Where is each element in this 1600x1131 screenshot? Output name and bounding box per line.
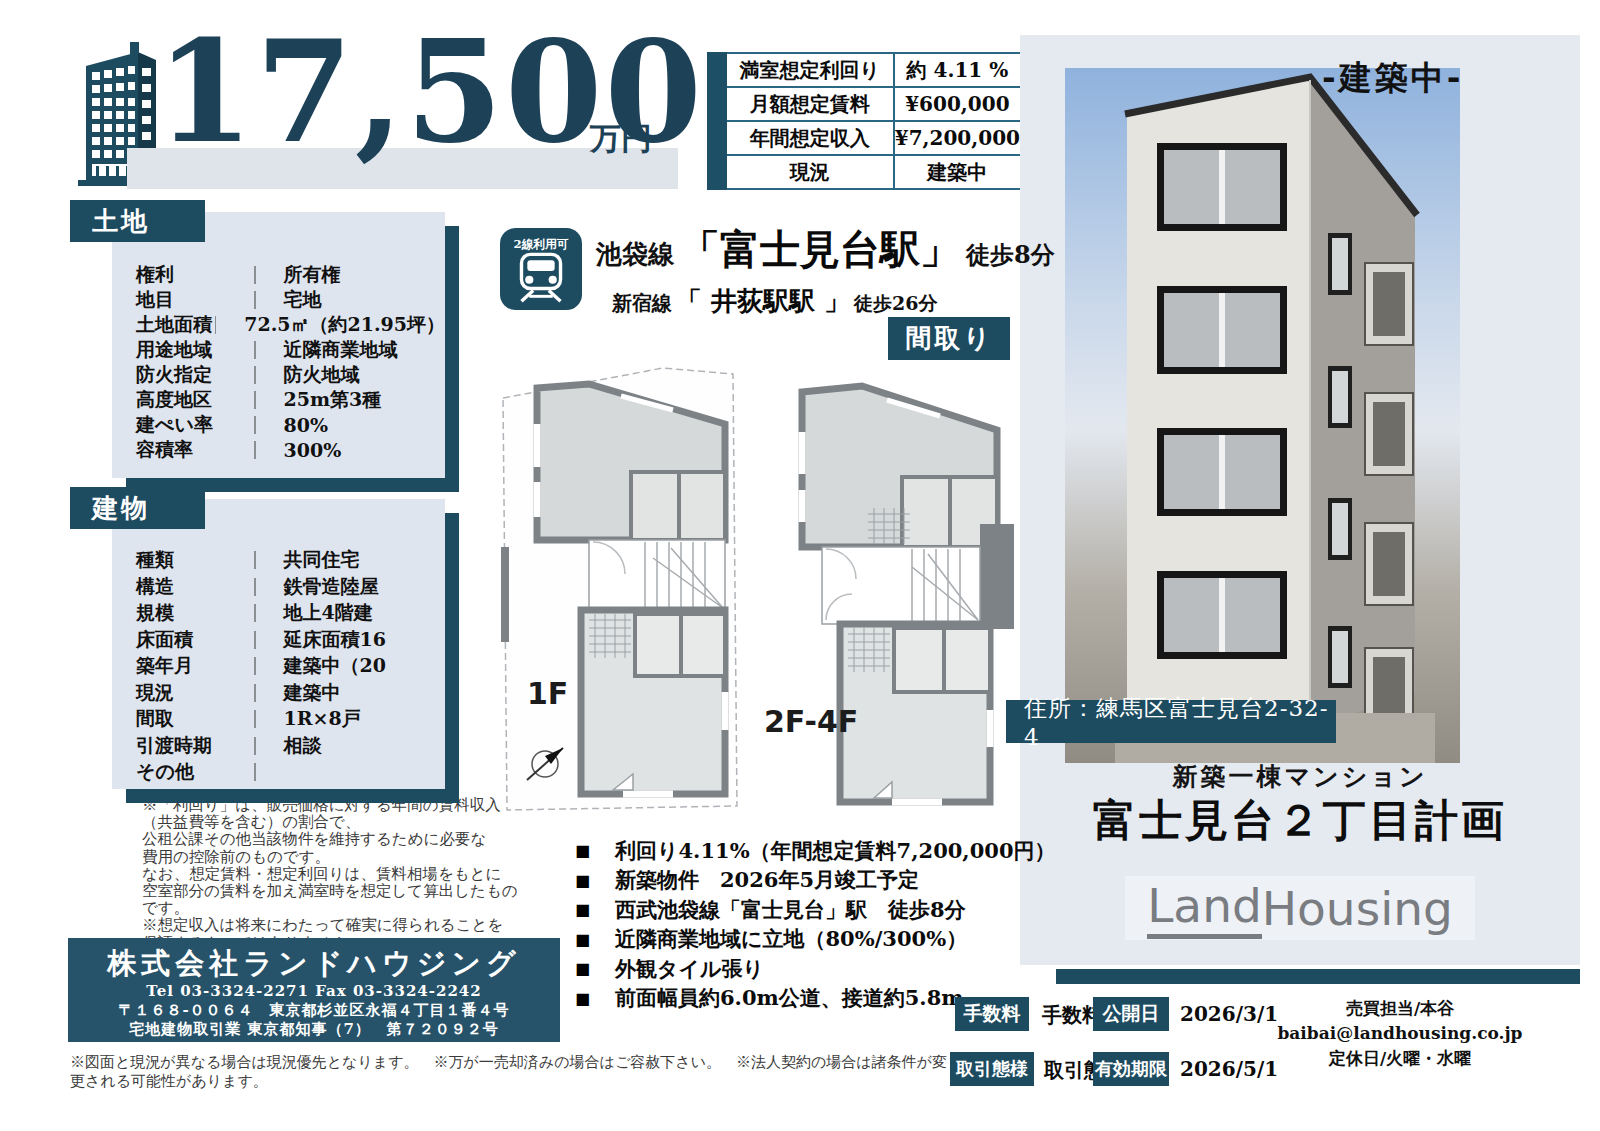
summary-label: 月額想定賃料: [727, 88, 895, 120]
table-row: 月額想定賃料 ¥600,000: [727, 88, 1020, 122]
company-telfax: Tel 03-3324-2271 Fax 03-3324-2242: [68, 982, 560, 1001]
walk-time: 徒歩8分: [966, 239, 1055, 271]
landhousing-logo: LandHousing: [1125, 876, 1475, 940]
published-value: 2026/3/1: [1180, 1002, 1278, 1026]
divider: [254, 657, 256, 675]
logo-part-housing: Housing: [1262, 881, 1453, 936]
divider: [254, 366, 256, 384]
rail-line-name: 新宿線: [612, 290, 672, 317]
summary-label: 現況: [727, 156, 895, 188]
price-unit: 万円: [590, 118, 652, 160]
transaction-mode-label-tag: 取引態様: [950, 1052, 1034, 1086]
divider: [254, 341, 256, 359]
spec-label: 間取: [136, 706, 254, 732]
property-category: 新築一棟マンション: [1020, 760, 1580, 793]
validity-label-tag: 有効期限: [1093, 1052, 1169, 1086]
primary-station-access: 池袋線 「富士見台駅」 徒歩8分: [596, 222, 1055, 277]
contact-person: 売買担当/本谷: [1265, 996, 1535, 1021]
summary-label: 年間想定収入: [727, 122, 895, 154]
land-spec-table: 権利所有権 地目宅地 土地面積72.5㎡（約21.95坪） 用途地域近隣商業地域…: [112, 212, 445, 478]
divider: [254, 416, 256, 434]
divider: [215, 316, 217, 334]
logo-part-land: Land: [1147, 878, 1262, 939]
table-row: 土地面積72.5㎡（約21.95坪）: [136, 312, 445, 337]
divider: [254, 266, 256, 284]
table-row: 現況建築中: [136, 680, 445, 707]
published-label-tag: 公開日: [1093, 997, 1169, 1031]
train-badge-text: 2線利用可: [514, 237, 569, 251]
spec-label: 地目: [136, 287, 254, 313]
divider: [254, 291, 256, 309]
spec-value: 建築中（20: [284, 653, 386, 679]
highlight-text: 利回り4.11%（年間想定賃料7,200,000円）: [615, 837, 1056, 865]
table-row: 引渡時期相談: [136, 733, 445, 760]
company-license: 宅地建物取引業 東京都知事（7） 第７２０９２号: [68, 1020, 560, 1039]
floorplan-2f-4f: 2F-4F: [762, 362, 1014, 812]
table-row: 高度地区25m第3種: [136, 387, 445, 412]
divider: [254, 604, 256, 622]
spec-label: 規模: [136, 600, 254, 626]
contact-email: baibai@landhousing.co.jp: [1265, 1021, 1535, 1046]
company-address: 〒１６８-００６４ 東京都杉並区永福４丁目１番４号: [68, 1001, 560, 1020]
square-bullet-icon: ■: [575, 871, 615, 890]
divider: [254, 684, 256, 702]
spec-value: 72.5㎡（約21.95坪）: [244, 312, 445, 338]
land-section-header: 土地: [70, 200, 205, 242]
table-row: 容積率300%: [136, 437, 445, 462]
divider: [254, 391, 256, 409]
spec-value: 宅地: [284, 287, 322, 313]
divider: [254, 763, 256, 781]
table-row: 構造鉄骨造陸屋: [136, 574, 445, 601]
station-name: 「 井荻駅駅 」: [676, 284, 850, 319]
spec-value: 近隣商業地域: [284, 337, 398, 363]
spec-label: 構造: [136, 574, 254, 600]
table-row: その他: [136, 759, 445, 786]
property-highlights-list: ■利回り4.11%（年間想定賃料7,200,000円） ■新築物件 2026年5…: [575, 836, 1025, 1013]
spec-value: 25m第3種: [284, 387, 382, 413]
spec-value: 300%: [284, 439, 342, 461]
table-row: 年間想定収入 ¥7,200,000: [727, 122, 1020, 156]
walk-time: 徒歩26分: [854, 291, 937, 317]
floorplan-1f-label: 1F: [527, 676, 568, 711]
building-spec-table: 種類共同住宅 構造鉄骨造陸屋 規模地上4階建 床面積延床面積16 築年月建築中（…: [112, 499, 445, 789]
building-render-image: [1065, 68, 1460, 763]
divider: [254, 551, 256, 569]
property-title: 富士見台２丁目計画: [1020, 792, 1580, 850]
secondary-station-access: 新宿線 「 井荻駅駅 」 徒歩26分: [612, 284, 938, 319]
income-summary-table: 満室想定利回り 約 4.11 % 月額想定賃料 ¥600,000 年間想定収入 …: [707, 52, 1022, 190]
summary-value: 約 4.11 %: [895, 54, 1020, 86]
contact-holiday: 定休日/火曜・水曜: [1265, 1046, 1535, 1071]
spec-label: 用途地域: [136, 337, 254, 363]
disclaimer-line: 公租公課その他当該物件を維持するために必要な: [142, 831, 522, 848]
disclaimer-line: なお、想定賃料・想定利回りは、賃料相場をもとに: [142, 866, 522, 883]
bottom-footnote: ※図面と現況が異なる場合は現況優先となります。 ※万が一売却済みの場合はご容赦下…: [70, 1053, 950, 1091]
sales-contact-block: 売買担当/本谷 baibai@landhousing.co.jp 定休日/火曜・…: [1265, 996, 1535, 1071]
divider: [254, 631, 256, 649]
highlight-text: 西武池袋線「富士見台」駅 徒歩8分: [615, 896, 966, 924]
spec-label: 築年月: [136, 653, 254, 679]
table-row: 地目宅地: [136, 287, 445, 312]
highlight-text: 近隣商業地域に立地（80%/300%）: [615, 925, 967, 953]
spec-label: その他: [136, 759, 254, 785]
spec-value: 所有権: [284, 262, 341, 288]
divider: [254, 737, 256, 755]
disclaimer-line: 費用の控除前のものです。: [142, 849, 522, 866]
spec-label: 高度地区: [136, 387, 254, 413]
floorplan-1f: 1F: [493, 362, 745, 812]
table-row: 種類共同住宅: [136, 547, 445, 574]
disclaimer-line: 空室部分の賃料を加え満室時を想定して算出したものです。: [142, 883, 522, 917]
construction-status-banner: -建築中-: [1322, 56, 1463, 101]
spec-value: 相談: [284, 733, 322, 759]
square-bullet-icon: ■: [575, 959, 615, 978]
table-row: 間取1R×8戸: [136, 706, 445, 733]
disclaimer-line: ※「利回り」は、販売価格に対する年間の賃料収入: [142, 797, 522, 814]
station-name: 「富士見台駅」: [680, 222, 960, 277]
spec-label: 防火指定: [136, 362, 254, 388]
validity-value: 2026/5/1: [1180, 1057, 1278, 1081]
spec-value: 1R×8戸: [284, 706, 361, 732]
spec-value: 建築中: [284, 680, 341, 706]
table-row: 防火指定防火地域: [136, 362, 445, 387]
building-section-header: 建物: [70, 487, 205, 529]
yield-disclaimer: ※「利回り」は、販売価格に対する年間の賃料収入 （共益費等を含む）の割合で、 公…: [142, 797, 522, 952]
floorplan-section-label: 間取り: [888, 317, 1010, 360]
spec-value: 延床面積16: [284, 627, 386, 653]
square-bullet-icon: ■: [575, 900, 615, 919]
square-bullet-icon: ■: [575, 989, 615, 1008]
summary-accent-bar: [707, 52, 727, 190]
company-info-box: 株式会社ランドハウジング Tel 03-3324-2271 Fax 03-332…: [68, 938, 560, 1042]
table-row: 現況 建築中: [727, 156, 1020, 190]
list-item: ■利回り4.11%（年間想定賃料7,200,000円）: [575, 836, 1025, 866]
table-row: 満室想定利回り 約 4.11 %: [727, 54, 1020, 88]
summary-value: ¥7,200,000: [895, 122, 1020, 154]
fee-label-tag: 手数料: [955, 997, 1029, 1031]
rail-line-name: 池袋線: [596, 237, 674, 272]
spec-value: 防火地域: [284, 362, 360, 388]
panel-shadow-bar: [1056, 969, 1580, 984]
summary-value: ¥600,000: [895, 88, 1020, 120]
list-item: ■近隣商業地域に立地（80%/300%）: [575, 925, 1025, 955]
spec-value: 鉄骨造陸屋: [284, 574, 379, 600]
property-flyer: 17,500 万円 満室想定利回り 約 4.11 % 月額想定賃料 ¥600,0…: [0, 0, 1600, 1131]
highlight-text: 前面幅員約6.0m公道、接道約5.8m: [615, 984, 964, 1012]
disclaimer-line: ※想定収入は将来にわたって確実に得られることを: [142, 917, 522, 934]
divider: [254, 578, 256, 596]
property-address-bar: 住所：練馬区富士見台2-32-4: [1006, 700, 1336, 743]
spec-label: 引渡時期: [136, 733, 254, 759]
square-bullet-icon: ■: [575, 930, 615, 949]
list-item: ■新築物件 2026年5月竣工予定: [575, 866, 1025, 896]
list-item: ■外観タイル張り: [575, 954, 1025, 984]
disclaimer-line: （共益費等を含む）の割合で、: [142, 814, 522, 831]
train-icon: 2線利用可: [500, 228, 582, 310]
table-row: 建ぺい率80%: [136, 412, 445, 437]
summary-label: 満室想定利回り: [727, 54, 895, 86]
divider: [254, 441, 256, 459]
spec-label: 土地面積: [136, 312, 215, 338]
highlight-text: 外観タイル張り: [615, 955, 764, 983]
spec-value: 共同住宅: [284, 547, 360, 573]
divider: [254, 710, 256, 728]
floorplan-2f4f-label: 2F-4F: [764, 704, 858, 739]
square-bullet-icon: ■: [575, 841, 615, 860]
list-item: ■西武池袋線「富士見台」駅 徒歩8分: [575, 895, 1025, 925]
spec-label: 現況: [136, 680, 254, 706]
spec-label: 床面積: [136, 627, 254, 653]
company-name: 株式会社ランドハウジング: [68, 945, 560, 982]
summary-value: 建築中: [895, 156, 1020, 188]
spec-label: 種類: [136, 547, 254, 573]
table-row: 床面積延床面積16: [136, 627, 445, 654]
spec-label: 容積率: [136, 437, 254, 463]
table-row: 用途地域近隣商業地域: [136, 337, 445, 362]
spec-label: 建ぺい率: [136, 412, 254, 438]
highlight-text: 新築物件 2026年5月竣工予定: [615, 866, 919, 894]
spec-value: 地上4階建: [284, 600, 373, 626]
table-row: 規模地上4階建: [136, 600, 445, 627]
spec-label: 権利: [136, 262, 254, 288]
spec-value: 80%: [284, 414, 329, 436]
table-row: 築年月建築中（20: [136, 653, 445, 680]
table-row: 権利所有権: [136, 262, 445, 287]
